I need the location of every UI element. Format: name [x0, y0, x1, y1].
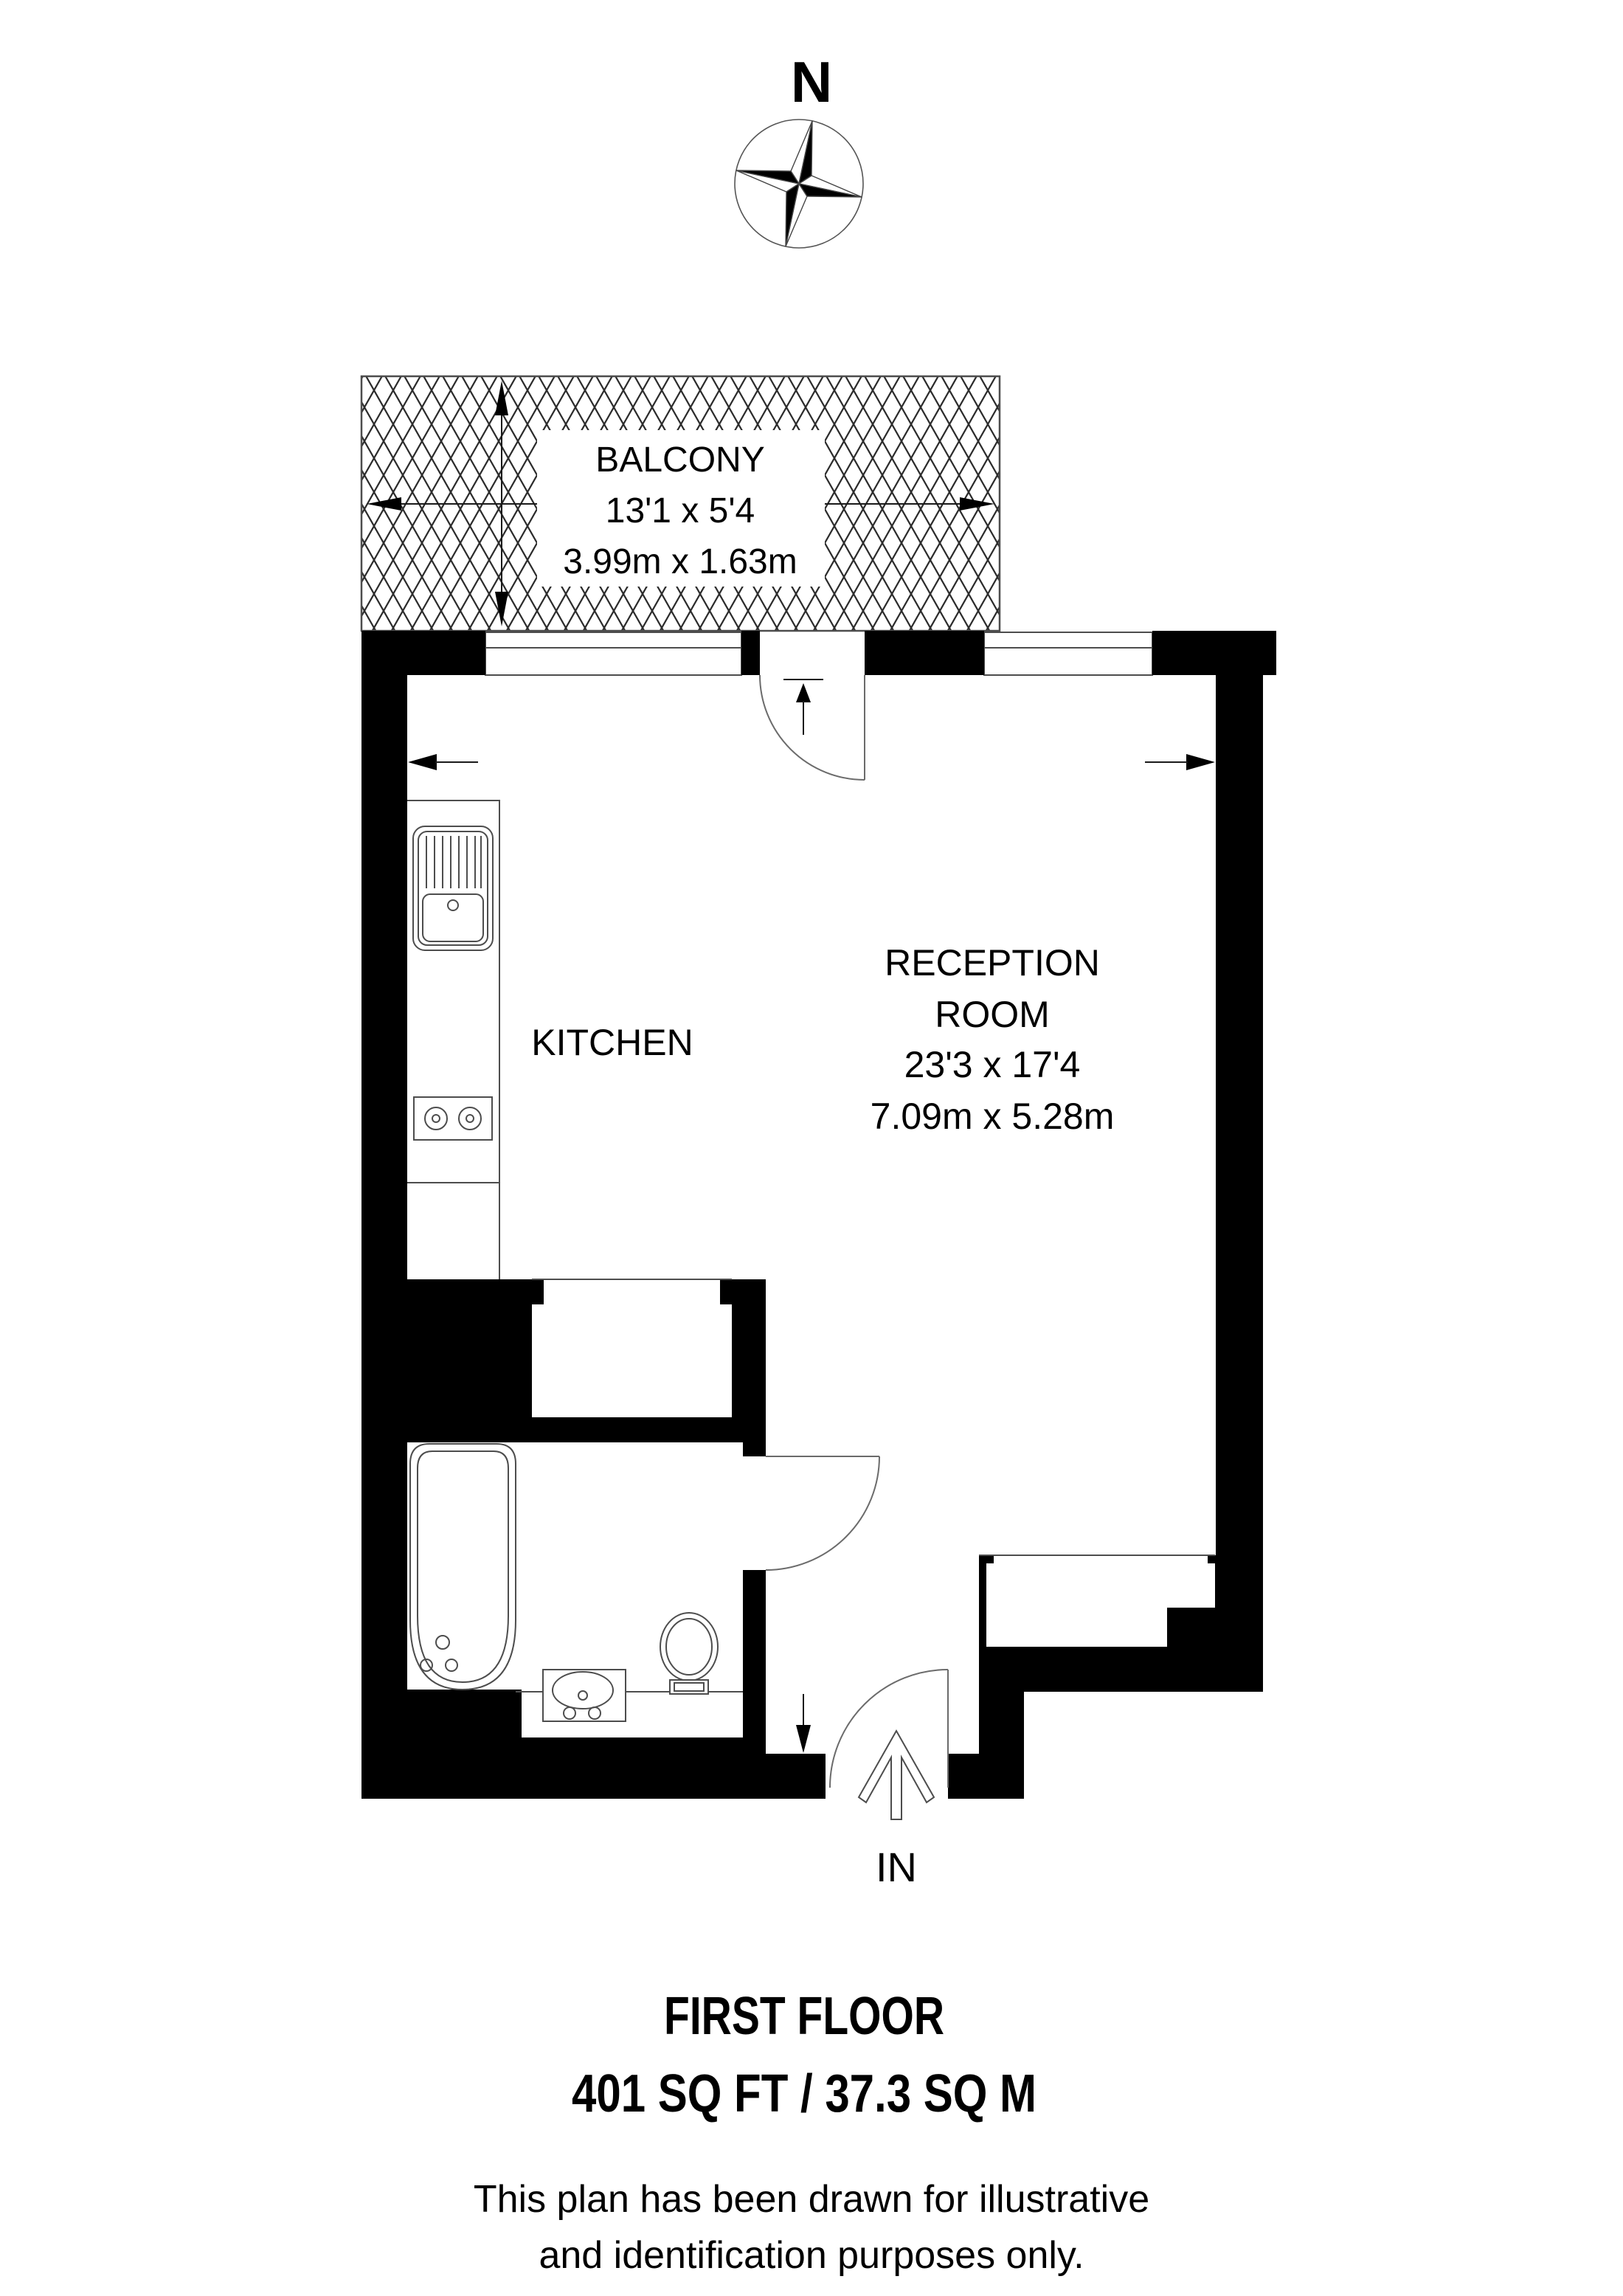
- bathroom-door: [766, 1456, 879, 1570]
- compass-rose: N: [735, 49, 863, 248]
- alcove-notch-right: [1208, 1555, 1215, 1563]
- bathroom-door-swing-icon: [766, 1456, 879, 1570]
- width-arrow-right: [1145, 754, 1215, 770]
- compass-rose-icon: [736, 121, 862, 246]
- balcony-dims-imperial: 13'1 x 5'4: [606, 491, 755, 530]
- sink-drainer-lines: [426, 836, 481, 888]
- floor-plan-canvas: N BALCONY 13'1 x 5'4: [0, 0, 1623, 2296]
- sink-basin: [423, 894, 483, 941]
- alcove-wall-bottom: [979, 1647, 1263, 1692]
- bathroom-area: [410, 1444, 718, 1721]
- balcony-window-left: [485, 632, 741, 675]
- wall-bathroom-east-stub: [743, 1442, 766, 1456]
- footer-floor-label: FIRST FLOOR: [664, 1987, 944, 2046]
- alcove-wall-right: [1215, 1555, 1263, 1608]
- alcove-wall-left: [979, 1555, 986, 1647]
- entrance-label: IN: [876, 1844, 917, 1890]
- bathtub-icon: [410, 1444, 516, 1690]
- edge-lines: [516, 1279, 1215, 1692]
- doors: [760, 675, 948, 1788]
- entrance: IN: [859, 1731, 934, 1890]
- hob-icon: [414, 1097, 492, 1140]
- reception-label-line2: ROOM: [935, 994, 1050, 1035]
- wall-entry-right-column: [979, 1692, 1024, 1754]
- wall-kitchen-bathroom: [407, 1279, 532, 1442]
- footer-disclaimer-line1: This plan has been drawn for illustrativ…: [474, 2178, 1149, 2221]
- balcony-area: BALCONY 13'1 x 5'4 3.99m x 1.63m: [361, 376, 1000, 631]
- kitchen-counter-edge: [407, 801, 499, 1279]
- reception-dims-imperial: 23'3 x 17'4: [904, 1044, 1081, 1085]
- footer-disclaimer-line2: and identification purposes only.: [539, 2234, 1084, 2277]
- alcove-step: [1167, 1608, 1263, 1647]
- footer-area-label: 401 SQ FT / 37.3 SQ M: [572, 2064, 1037, 2123]
- sink-drain: [448, 900, 458, 910]
- reception-label-line1: RECEPTION: [885, 942, 1100, 983]
- entry-door-swing-icon: [830, 1670, 948, 1788]
- balcony-dims-metric: 3.99m x 1.63m: [563, 542, 797, 581]
- compass-north-label: N: [791, 49, 832, 114]
- height-arrow-bottom: [796, 1694, 811, 1753]
- alcove-notch-left: [986, 1555, 994, 1563]
- wall-bathroom-south: [407, 1737, 766, 1799]
- toilet-icon: [660, 1613, 718, 1694]
- wall-closet-bottom: [522, 1417, 766, 1442]
- balcony-label: BALCONY: [595, 440, 764, 480]
- closet-jamb-right: [720, 1279, 732, 1304]
- balcony-window-right: [984, 632, 1152, 675]
- balcony-door: [760, 675, 865, 780]
- wall-right: [1216, 675, 1263, 1555]
- windows: [485, 632, 1152, 675]
- wall-top-mid: [865, 631, 984, 675]
- sink-icon: [413, 826, 493, 950]
- footer: FIRST FLOOR 401 SQ FT / 37.3 SQ M This p…: [474, 1987, 1149, 2277]
- room-dimension-arrows: [408, 680, 1215, 1753]
- width-arrow-left: [408, 754, 478, 770]
- floorplan-page: { "compass": { "label": "N" }, "balcony"…: [0, 0, 1623, 2296]
- entry-jamb-right: [948, 1754, 1024, 1799]
- wall-left: [361, 675, 407, 1799]
- kitchen-area: KITCHEN: [407, 801, 693, 1279]
- height-arrow-top: [783, 680, 823, 735]
- basin-icon: [543, 1670, 626, 1721]
- balcony-door-swing-icon: [760, 675, 865, 780]
- entry-arrow-icon: [859, 1731, 934, 1819]
- closet-jamb-left: [532, 1279, 544, 1304]
- toilet-cistern: [670, 1680, 708, 1694]
- entry-door: [830, 1670, 948, 1788]
- reception-dims-metric: 7.09m x 5.28m: [871, 1096, 1115, 1137]
- reception-room-labels: RECEPTION ROOM 23'3 x 17'4 7.09m x 5.28m: [871, 942, 1115, 1137]
- wall-top-left: [361, 631, 485, 675]
- entry-jamb-left: [766, 1754, 826, 1799]
- wall-top-right-corner: [1152, 631, 1276, 675]
- wall-window-pier: [741, 631, 760, 675]
- kitchen-label: KITCHEN: [531, 1022, 693, 1063]
